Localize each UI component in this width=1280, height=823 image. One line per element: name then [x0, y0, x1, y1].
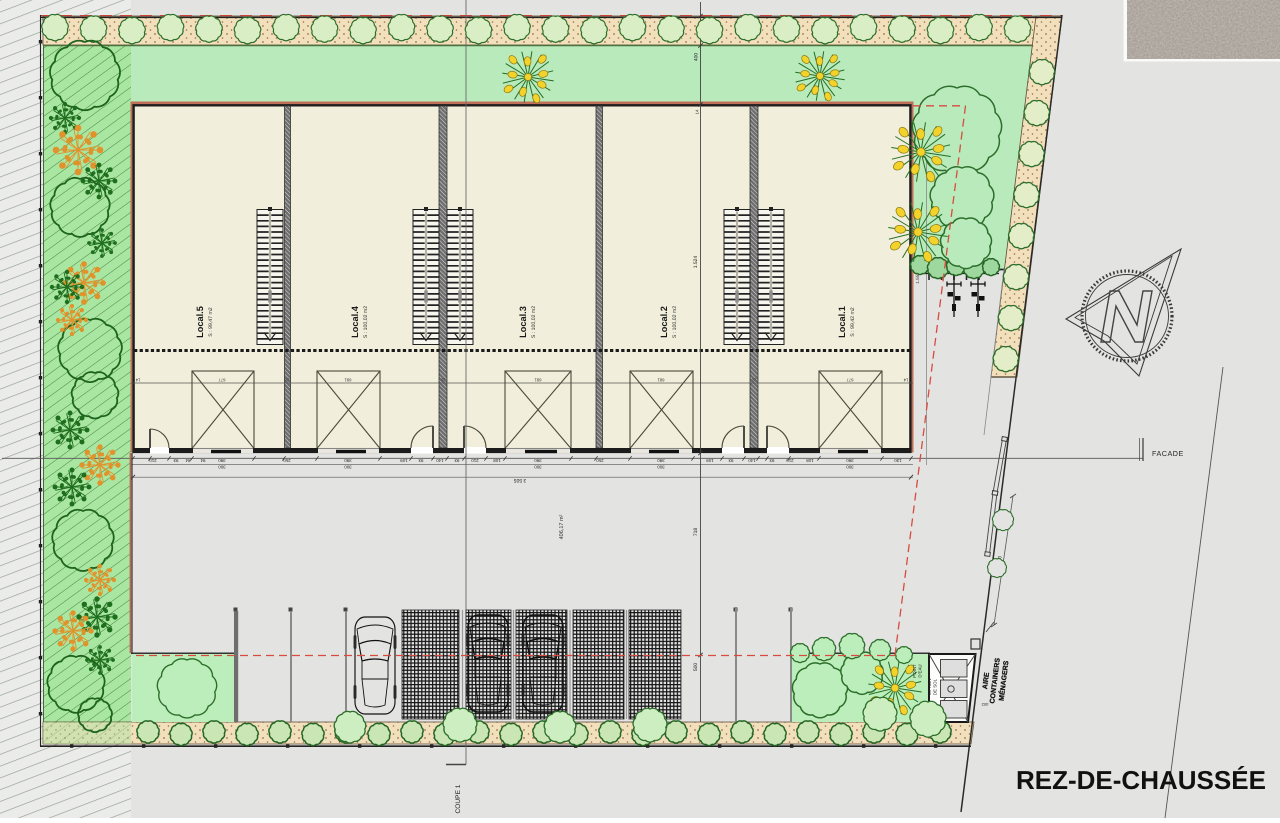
- svg-text:20: 20: [284, 377, 289, 382]
- svg-text:20: 20: [440, 377, 445, 382]
- svg-text:REZ-DE-CHAUSSÉE: REZ-DE-CHAUSSÉE: [1016, 765, 1266, 795]
- svg-text:POINT: POINT: [912, 664, 917, 678]
- svg-text:300: 300: [846, 465, 854, 470]
- svg-text:400: 400: [694, 53, 700, 62]
- svg-text:681: 681: [344, 377, 352, 382]
- svg-text:20: 20: [596, 377, 601, 382]
- svg-text:210: 210: [471, 458, 479, 463]
- svg-text:109: 109: [706, 458, 714, 463]
- svg-text:140: 140: [436, 458, 444, 463]
- svg-text:140: 140: [748, 458, 756, 463]
- svg-text:Local.5: Local.5: [195, 306, 205, 338]
- svg-text:S : 99,47 m2: S : 99,47 m2: [208, 307, 214, 337]
- svg-text:Local.2: Local.2: [659, 306, 669, 338]
- svg-text:718: 718: [693, 528, 699, 537]
- svg-text:93: 93: [454, 458, 459, 463]
- svg-text:390: 390: [344, 458, 352, 463]
- svg-text:681: 681: [534, 377, 542, 382]
- svg-text:Local.3: Local.3: [518, 306, 528, 338]
- svg-text:94: 94: [200, 458, 205, 463]
- svg-text:S : 100,02 m2: S : 100,02 m2: [531, 306, 537, 338]
- svg-text:402: 402: [981, 702, 989, 707]
- svg-text:3 505: 3 505: [514, 477, 527, 483]
- svg-text:93: 93: [173, 458, 178, 463]
- svg-text:390: 390: [657, 458, 665, 463]
- svg-text:300: 300: [657, 465, 665, 470]
- svg-text:406,17 m²: 406,17 m²: [559, 514, 565, 539]
- svg-text:93: 93: [418, 458, 423, 463]
- svg-text:681: 681: [657, 377, 665, 382]
- svg-text:677: 677: [846, 377, 854, 382]
- svg-text:390: 390: [218, 458, 226, 463]
- svg-text:300: 300: [218, 465, 226, 470]
- svg-text:Local.1: Local.1: [837, 306, 847, 338]
- svg-text:250: 250: [283, 458, 291, 463]
- svg-text:FACADE: FACADE: [1152, 449, 1184, 458]
- svg-text:DE SOL: DE SOL: [933, 678, 938, 695]
- svg-text:84: 84: [185, 458, 190, 463]
- svg-text:S : 100,02 m2: S : 100,02 m2: [363, 306, 369, 338]
- svg-text:93: 93: [728, 458, 733, 463]
- svg-text:390: 390: [534, 458, 542, 463]
- svg-text:250: 250: [596, 458, 604, 463]
- svg-text:390: 390: [846, 458, 854, 463]
- svg-text:20: 20: [751, 377, 756, 382]
- svg-text:300: 300: [534, 465, 542, 470]
- svg-text:Local.4: Local.4: [350, 305, 360, 338]
- svg-text:300: 300: [344, 465, 352, 470]
- svg-text:108: 108: [493, 458, 501, 463]
- svg-text:109: 109: [400, 458, 408, 463]
- svg-text:COUPE 1: COUPE 1: [455, 784, 462, 813]
- svg-text:D’EAU: D’EAU: [918, 664, 923, 677]
- svg-text:14: 14: [135, 377, 140, 382]
- svg-text:108: 108: [806, 458, 814, 463]
- svg-text:14: 14: [695, 109, 700, 114]
- svg-text:500: 500: [693, 663, 699, 672]
- svg-text:210: 210: [786, 458, 794, 463]
- svg-text:S : 100,02 m2: S : 100,02 m2: [672, 306, 678, 338]
- svg-text:130: 130: [894, 458, 902, 463]
- svg-text:210: 210: [149, 458, 157, 463]
- svg-text:S : 99,42 m2: S : 99,42 m2: [850, 307, 856, 337]
- svg-text:677: 677: [218, 377, 226, 382]
- svg-text:93: 93: [769, 458, 774, 463]
- svg-text:14: 14: [903, 377, 908, 382]
- svg-text:1.524: 1.524: [693, 256, 699, 269]
- svg-text:SIPHON: SIPHON: [927, 679, 932, 696]
